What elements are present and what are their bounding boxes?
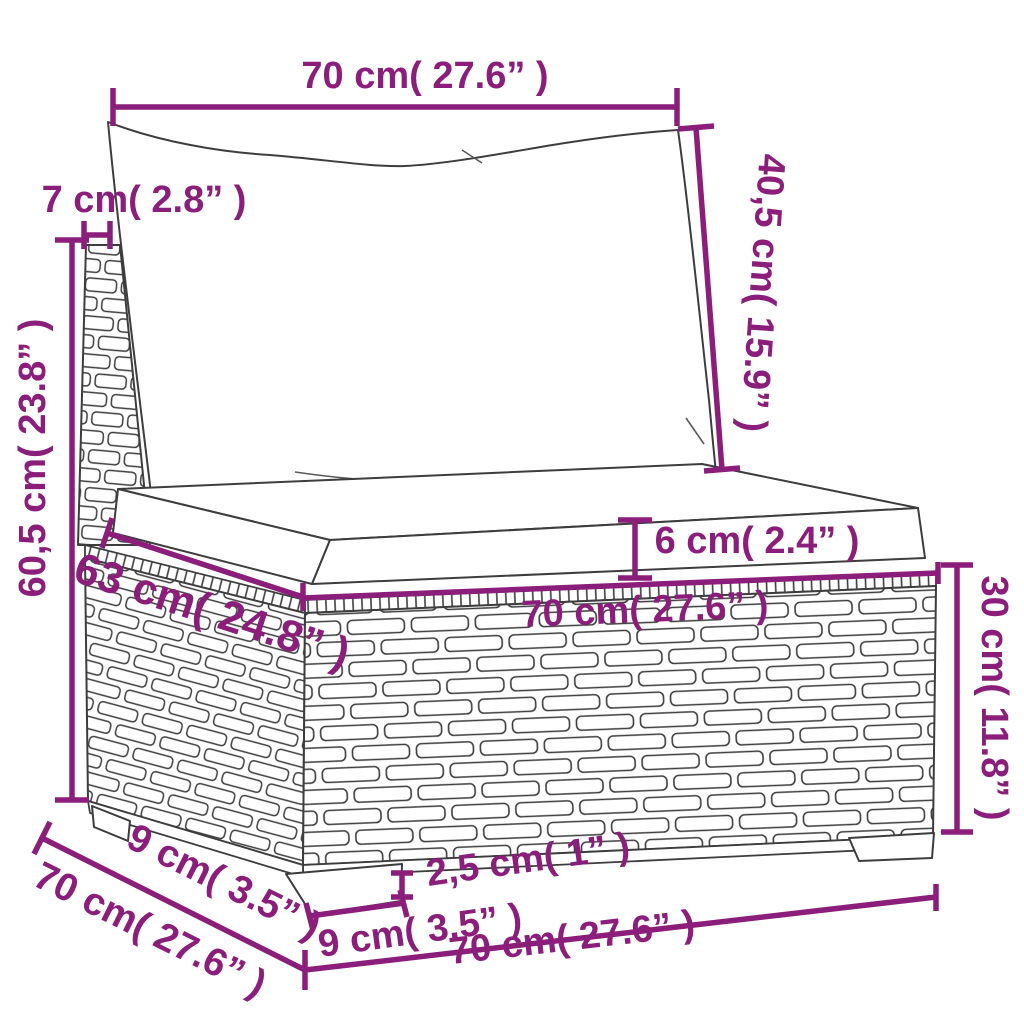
back-cushion-height-label: 40,5 cm( 15.9” ) bbox=[731, 152, 792, 433]
total-height-label: 60,5 cm( 23.8” ) bbox=[12, 319, 54, 598]
back-frame-depth-label: 7 cm( 2.8” ) bbox=[42, 179, 247, 221]
sofa-line-art bbox=[78, 122, 936, 915]
seat-cushion-thickness-label: 6 cm( 2.4” ) bbox=[655, 520, 860, 562]
product-dimension-diagram: 70 cm( 27.6” ) 40,5 cm( 15.9” ) 7 cm( 2.… bbox=[0, 0, 1024, 1024]
back-cushion-width-label: 70 cm( 27.6” ) bbox=[301, 55, 548, 97]
base-height-label: 30 cm( 11.8” ) bbox=[973, 575, 1015, 820]
dim-base-height bbox=[941, 565, 973, 832]
leg-front-right bbox=[849, 833, 934, 861]
diagram-canvas: 70 cm( 27.6” ) 40,5 cm( 15.9” ) 7 cm( 2.… bbox=[0, 0, 1024, 1024]
